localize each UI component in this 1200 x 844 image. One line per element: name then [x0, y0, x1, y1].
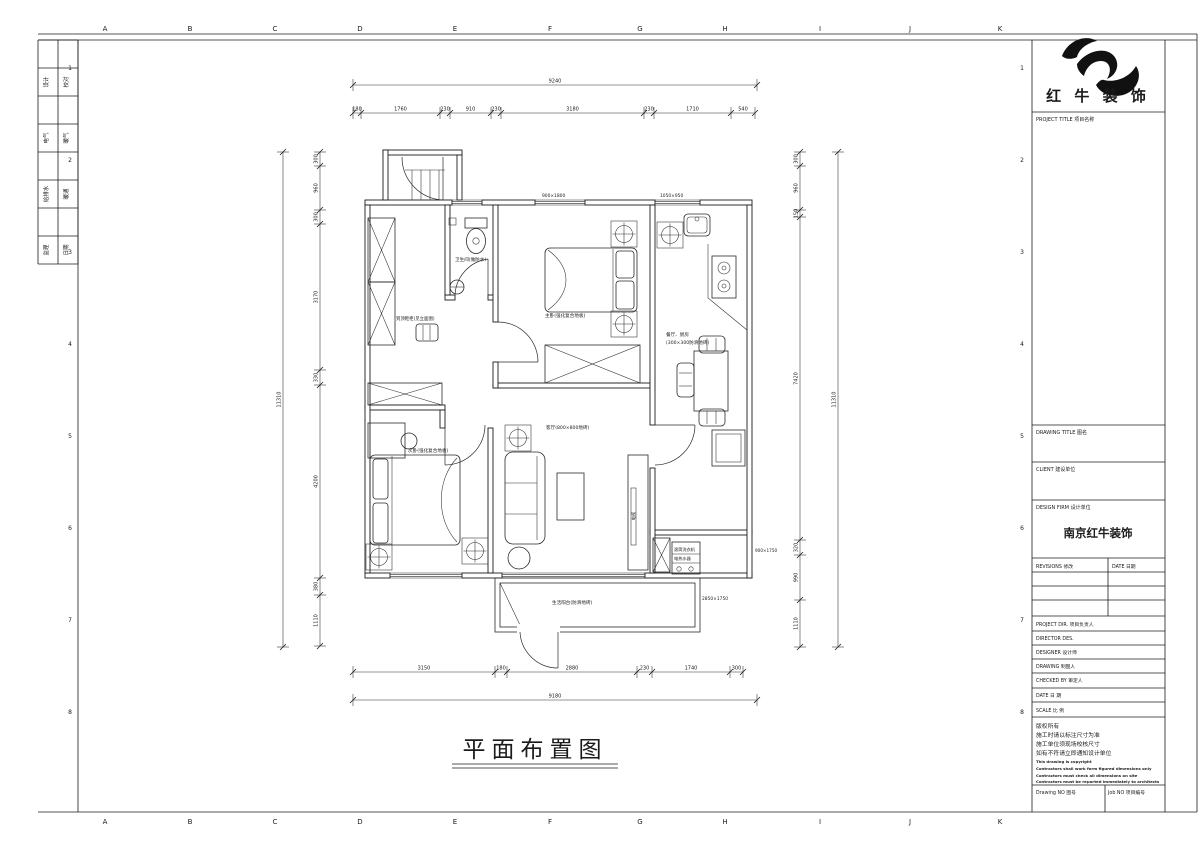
room-label: 900×1750	[755, 548, 777, 553]
side-table	[508, 547, 530, 569]
grid-number: 8	[1020, 709, 1024, 716]
grid-number: 1	[68, 65, 72, 72]
room-label: 电热水器	[674, 555, 692, 562]
dim-label: 3150	[418, 666, 431, 672]
grid-letter: J	[908, 818, 911, 826]
grid-number: 4	[68, 341, 72, 348]
signoff-label: 设计	[42, 76, 50, 88]
grid-number: 6	[1020, 525, 1024, 532]
grid-letter: H	[722, 818, 727, 826]
design-firm-value: 南京红牛装饰	[1064, 526, 1133, 540]
second-bed	[370, 455, 460, 545]
grid-letter: D	[357, 25, 362, 33]
titleblock-label: PROJECT TITLE 项目名称	[1036, 116, 1094, 123]
dim-label: 300	[732, 666, 742, 672]
dim-label: 9180	[549, 694, 562, 700]
room-label: 滚筒洗衣机	[674, 546, 696, 553]
dim-label: 1760	[394, 107, 407, 113]
dim-label: 230	[440, 107, 450, 113]
hall-cabinet	[368, 218, 395, 345]
grid-letter: A	[103, 818, 108, 826]
furniture	[366, 170, 747, 574]
room-label: 1050×950	[660, 193, 683, 199]
grid-letter: K	[998, 818, 1003, 826]
dim-label: 1710	[686, 107, 699, 113]
copyright-note: Contractors must be reported immediately…	[1036, 779, 1160, 784]
kitchen-lamp	[657, 222, 683, 248]
dim-label: 540	[738, 107, 748, 113]
titleblock-label: CLIENT 建设单位	[1036, 466, 1075, 473]
dim-chain-right-overall: 11310	[832, 149, 845, 650]
room-label: 2850×1750	[702, 596, 728, 602]
balcony	[495, 578, 700, 668]
grid-number: 2	[1020, 157, 1024, 164]
dim-chain-bottom-overall: 9180	[350, 694, 760, 707]
hall-stool	[416, 324, 438, 341]
copyright-note: 施工单位须现场校核尺寸	[1036, 740, 1100, 748]
titleblock-row: CHECKED BY 审定人	[1036, 677, 1083, 684]
room-label: 生活阳台(防滑地砖)	[552, 599, 593, 606]
titleblock-row: SCALE 比 例	[1036, 707, 1064, 714]
grid-number: 3	[1020, 249, 1024, 256]
grid-letter: F	[548, 25, 552, 33]
dim-label: 1740	[685, 666, 698, 672]
kitchen-sink	[684, 214, 710, 236]
dim-label: 11310	[277, 392, 283, 408]
dim-label: 3170	[314, 291, 320, 304]
grid-letter: B	[188, 25, 193, 33]
copyright-note: Contractors must check all dimensions on…	[1036, 773, 1138, 778]
titleblock-row: DIRECTOR DES.	[1036, 636, 1074, 642]
titleblock-label: DRAWING TITLE 图名	[1036, 429, 1087, 436]
titleblock-row: DRAWING 制图人	[1036, 663, 1075, 670]
utility-cabinet	[653, 538, 670, 572]
dining-table	[677, 336, 728, 426]
dim-label: 230	[644, 107, 654, 113]
room-label: 主卧(强化复合地板)	[545, 312, 586, 319]
grid-letter: I	[819, 25, 821, 33]
room-label: 900×1800	[542, 193, 565, 199]
nightstand-lamp	[462, 538, 488, 564]
titleblock-label: DATE 日期	[1112, 564, 1136, 570]
dim-label: 2880	[566, 666, 579, 672]
dim-label: 990	[794, 573, 800, 583]
dim-chain-left-overall: 11310	[277, 149, 290, 650]
sheet-frame	[38, 34, 1197, 812]
dim-label: 380	[314, 582, 320, 592]
dim-label: 910	[466, 107, 476, 113]
dim-label: 180	[496, 666, 506, 672]
dim-label: 230	[640, 666, 650, 672]
grid-letter: D	[357, 818, 362, 826]
dim-label: 960	[794, 183, 800, 193]
signoff-label: 给排水	[42, 185, 50, 202]
room-label: 到顶鞋柜(见立面图)	[396, 315, 435, 322]
dim-label: 230	[491, 107, 501, 113]
dim-label: 180	[352, 107, 362, 113]
dim-label: 320	[794, 543, 800, 553]
dim-label: 1110	[314, 614, 320, 627]
nightstand-lamp	[611, 221, 637, 247]
second-wardrobe	[368, 383, 442, 405]
room-label: 客厅(800×800地砖)	[546, 424, 590, 431]
drawing-sheet: 红 牛 装 饰 南京红牛装饰	[0, 0, 1200, 844]
grid-number: 1	[1020, 65, 1024, 72]
nightstand-lamp	[611, 311, 637, 337]
title-block-text: PROJECT TITLE 项目名称DRAWING TITLE 图名CLIENT…	[1036, 116, 1160, 796]
coffee-table	[557, 473, 584, 520]
grid-number: 5	[1020, 433, 1024, 440]
dim-label: 300	[794, 154, 800, 164]
dim-chain-bottom-segments: 315018028802301740300	[350, 666, 746, 679]
copyright-note: 版权所有	[1036, 722, 1059, 730]
room-label: 卫生间(做防水)	[455, 256, 486, 263]
logo-text: 红 牛 装 饰	[1046, 87, 1150, 105]
dim-label: 330	[314, 373, 320, 383]
room-labels: 卫生间(做防水)到顶鞋柜(见立面图)主卧(强化复合地板)次卧(强化复合地板)客厅…	[396, 193, 777, 606]
grid-letter: A	[103, 25, 108, 33]
fridge	[712, 430, 745, 466]
signoff-label: 暖通	[62, 188, 70, 200]
dim-label: 4200	[314, 475, 320, 488]
grid-number: 5	[68, 433, 72, 440]
counter-edge	[708, 244, 747, 330]
grid-letter: C	[273, 25, 278, 33]
signoff-label: 暖气	[62, 132, 70, 144]
dim-label: 960	[314, 183, 320, 193]
copyright-note: 施工时请以标注尺寸为准	[1036, 731, 1100, 739]
copyright-note: 如有不符请立即通知设计单位	[1036, 749, 1112, 757]
dim-label: 300	[314, 212, 320, 222]
dim-label: 9240	[549, 79, 562, 85]
master-bed	[545, 248, 637, 312]
dim-label: 3180	[566, 107, 579, 113]
dim-chain-left-segments: 300960300317033042003801110	[314, 149, 327, 649]
signoff-label: 电气	[42, 132, 50, 144]
grid-letter: H	[722, 25, 727, 33]
titleblock-label: REVISIONS 修改	[1036, 563, 1073, 570]
grid-number: 4	[1020, 341, 1024, 348]
dim-label: 150	[794, 209, 800, 219]
grid-number: 8	[68, 709, 72, 716]
titleblock-row: DESIGNER 设计师	[1036, 649, 1077, 656]
grid-letter: J	[908, 25, 911, 33]
grid-letter: F	[548, 818, 552, 826]
living-lamp	[505, 425, 531, 451]
dim-chain-top-segments: 180176023091023031802301710540	[350, 107, 758, 120]
grid-letter: G	[637, 25, 642, 33]
room-label: 餐厅、厨房	[666, 331, 689, 338]
drawing-title-group: 平面布置图	[452, 737, 618, 768]
signoff-label: 日期	[63, 244, 70, 256]
grid-letter: E	[453, 818, 457, 826]
grid-letter: E	[453, 25, 457, 33]
dim-label: 1110	[794, 617, 800, 630]
signoff-strip: 设计校对电气暖气给排水暖通监理日期	[38, 40, 78, 264]
grid-number: 7	[1020, 617, 1024, 624]
copyright-note: Contractors shall work form figured dime…	[1036, 766, 1152, 771]
room-label: (300×300防滑地砖)	[666, 339, 710, 346]
grid-letter: G	[637, 818, 642, 826]
titleblock-row: PROJECT DIR. 项目负责人	[1036, 621, 1094, 628]
master-wardrobe	[545, 345, 640, 383]
grid-number: 2	[68, 157, 72, 164]
grid-letter: K	[998, 25, 1003, 33]
sofa	[505, 452, 545, 544]
toilet	[465, 218, 487, 254]
grid-letter: B	[188, 818, 193, 826]
dim-chain-top-overall: 9240	[350, 79, 760, 92]
dim-label: 11310	[832, 392, 838, 408]
room-label: 次卧(强化复合地板)	[408, 447, 449, 454]
dim-label: 7420	[794, 372, 800, 385]
signoff-label: 校对	[62, 76, 70, 88]
gas-stove	[712, 256, 736, 298]
room-label: 电视	[630, 511, 637, 520]
titleblock-label: DESIGN FIRM 设计单位	[1036, 504, 1091, 511]
grid-number: 7	[68, 617, 72, 624]
grid-letter: I	[819, 818, 821, 826]
titleblock-row: DATE 日 期	[1036, 693, 1061, 699]
dim-label: 300	[314, 154, 320, 164]
signoff-label: 监理	[42, 244, 50, 256]
grid-number: 6	[68, 525, 72, 532]
titleblock-label: Drawing NO 图号	[1036, 790, 1076, 796]
titleblock-label: Job NO 项目编号	[1107, 789, 1145, 796]
dim-chain-right-segments: 30096015074203209901110	[794, 149, 807, 650]
copyright-note: This drawing is copyright	[1036, 759, 1092, 764]
dimension-chains: 9240180176023091023031802301710540315018…	[277, 79, 845, 707]
drawing-title: 平面布置图	[463, 737, 608, 763]
grid-letter: C	[273, 818, 278, 826]
